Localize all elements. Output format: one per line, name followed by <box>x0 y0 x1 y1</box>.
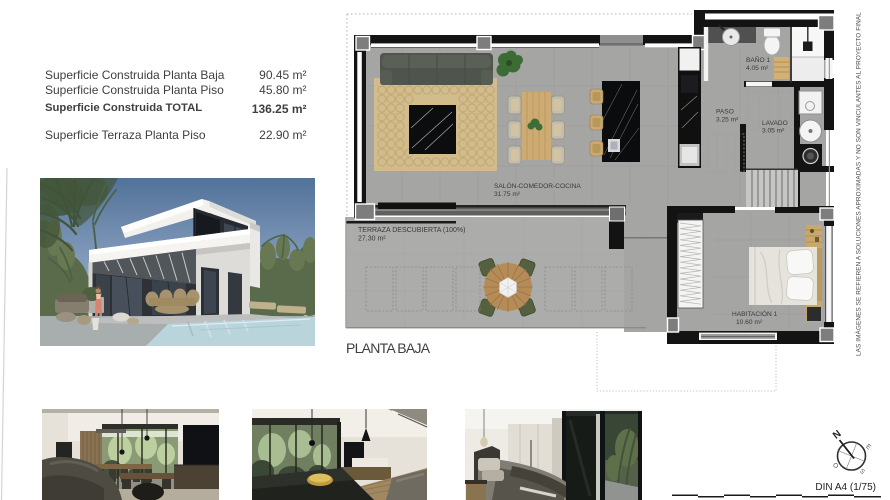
svg-text:LAS IMÁGENES SE REFIEREN A SOL: LAS IMÁGENES SE REFIEREN A SOLUCIONES AP… <box>854 12 863 356</box>
svg-text:3.05 m²: 3.05 m² <box>762 128 785 135</box>
svg-text:27.30 m²: 27.30 m² <box>358 236 386 243</box>
svg-text:O: O <box>831 462 839 471</box>
svg-text:N: N <box>831 428 843 441</box>
svg-text:LAVADO: LAVADO <box>762 120 788 127</box>
svg-text:3.25 m²: 3.25 m² <box>716 117 739 124</box>
svg-text:10.60 m²: 10.60 m² <box>736 319 763 326</box>
svg-text:SALÓN-COMEDOR-COCINA: SALÓN-COMEDOR-COCINA <box>494 181 581 190</box>
svg-text:HABITACIÓN 1: HABITACIÓN 1 <box>732 309 778 318</box>
svg-text:PASO: PASO <box>716 109 734 116</box>
svg-text:E: E <box>864 443 872 452</box>
svg-text:31.75 m²: 31.75 m² <box>494 191 521 198</box>
svg-text:BAÑO 1: BAÑO 1 <box>746 55 771 64</box>
svg-text:4.05 m²: 4.05 m² <box>746 65 769 72</box>
svg-text:S: S <box>858 468 866 477</box>
svg-text:TERRAZA DESCUBIERTA (100%): TERRAZA DESCUBIERTA (100%) <box>358 227 466 234</box>
